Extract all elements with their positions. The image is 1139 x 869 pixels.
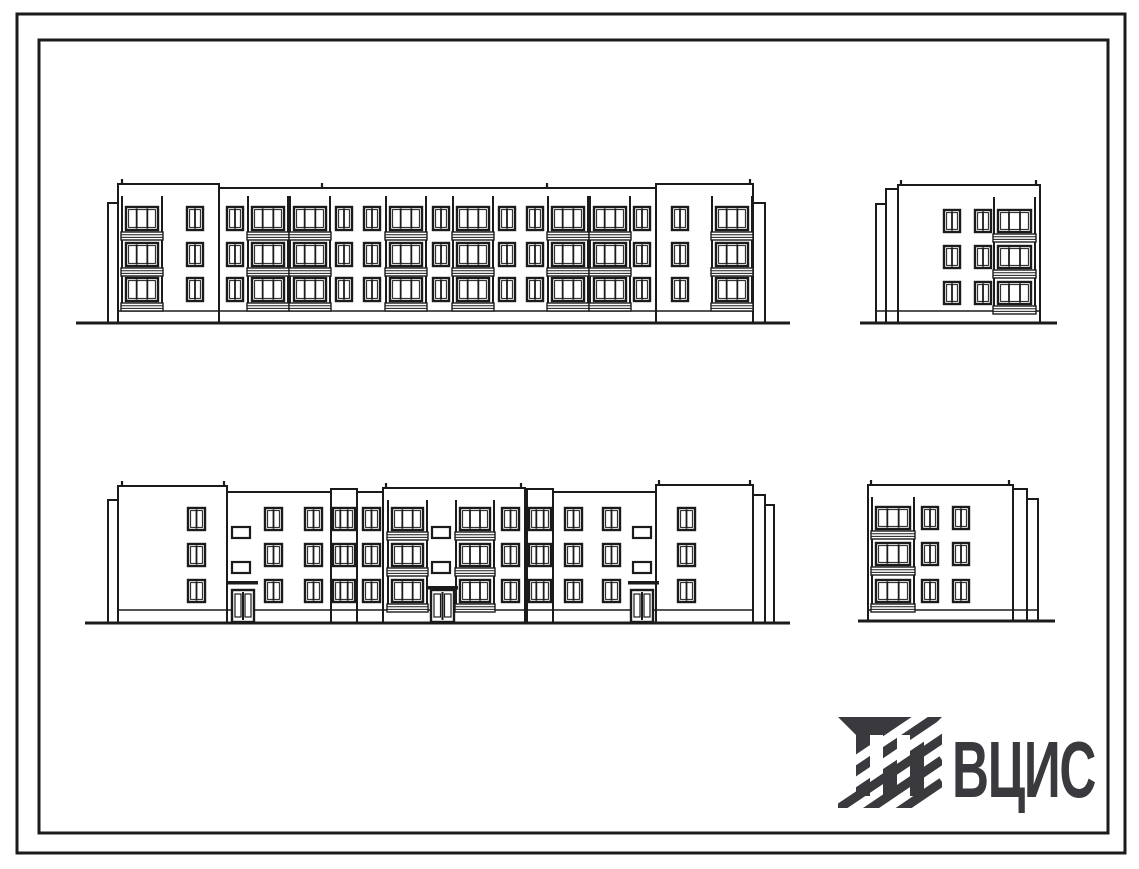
side-elevation-top-right <box>860 180 1057 323</box>
vcis-logo-text: ВЦИС <box>952 730 1095 810</box>
side-elevation-bottom-right <box>858 480 1055 621</box>
vcis-logo: ВЦИС <box>838 714 1139 808</box>
vcis-column-hatch-icon <box>838 714 942 808</box>
rear-elevation <box>85 480 790 623</box>
front-elevation <box>76 179 790 323</box>
blueprint-sheet: ВЦИС <box>0 0 1139 869</box>
